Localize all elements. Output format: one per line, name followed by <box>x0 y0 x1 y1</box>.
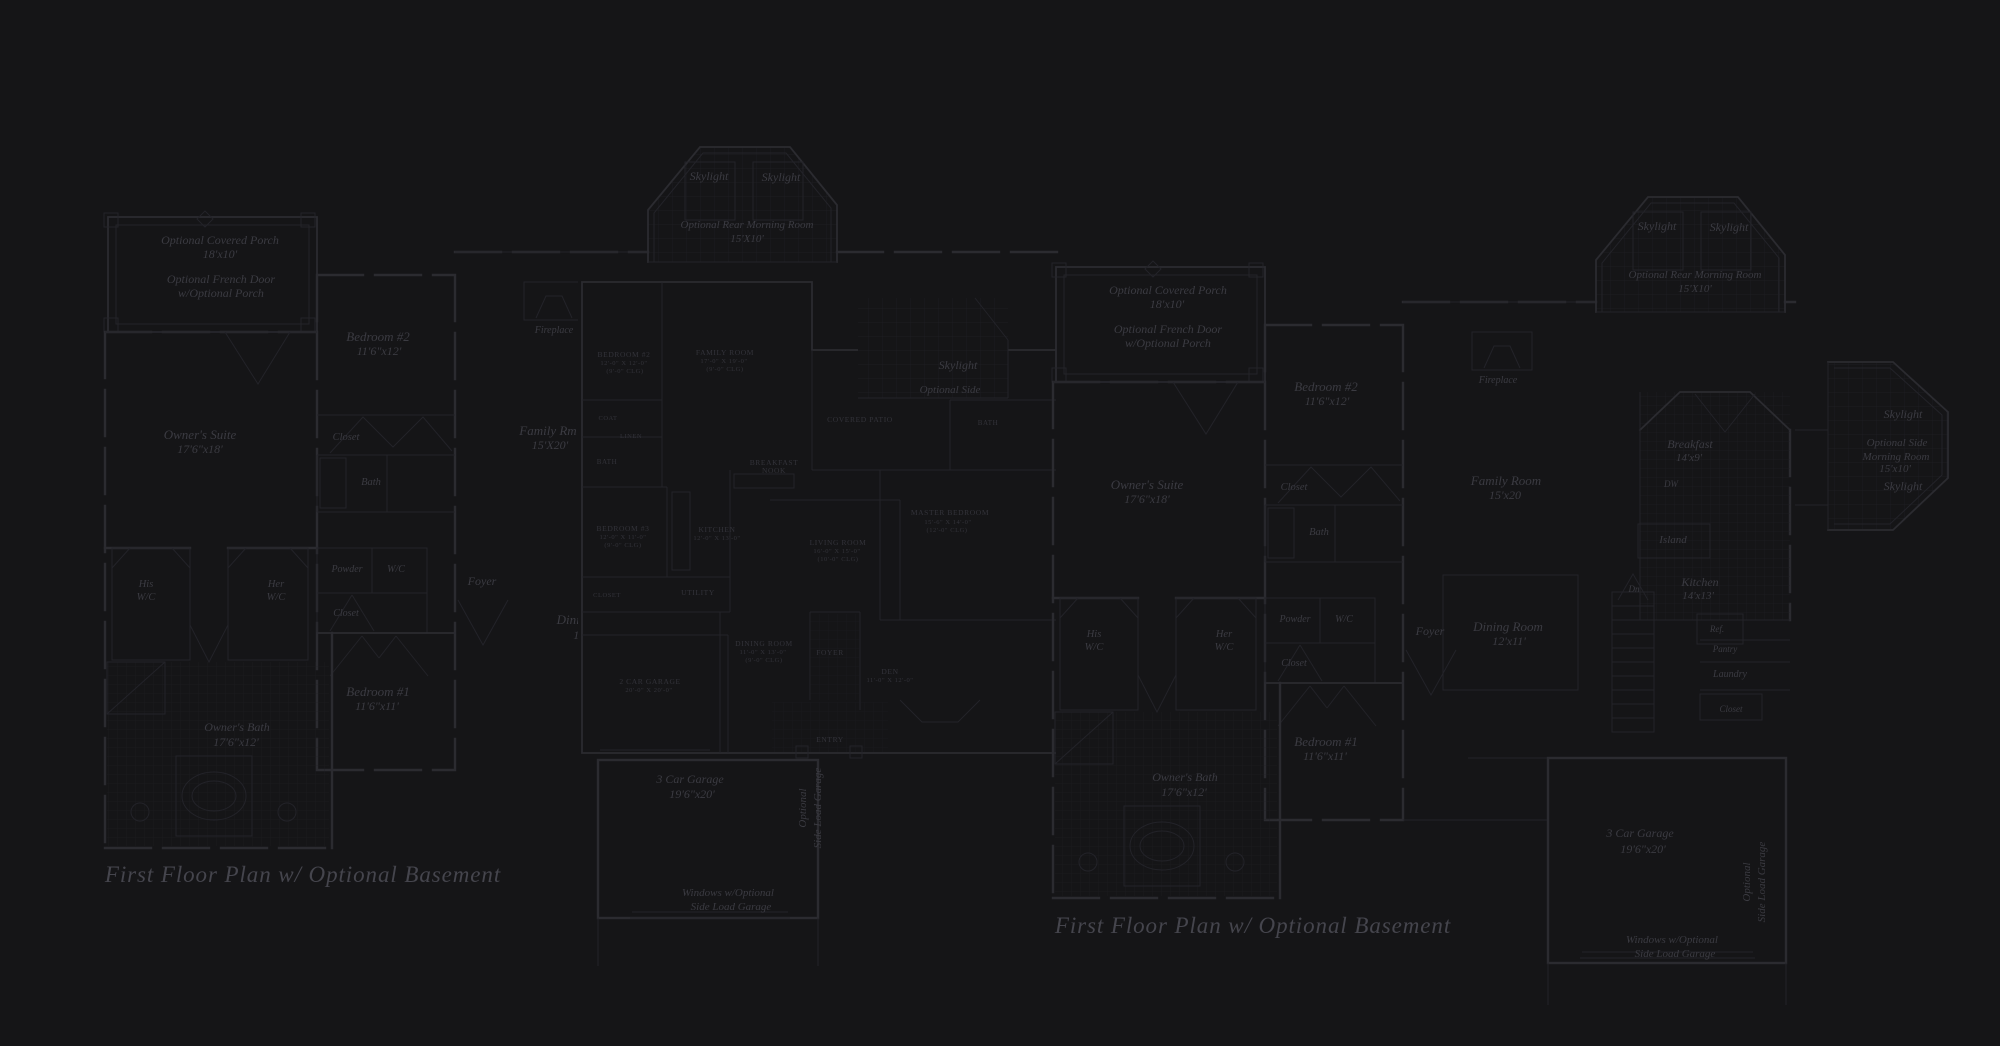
right-opt-french-door-2: w/Optional Porch <box>1125 336 1211 350</box>
mid-optional-side: Optional Side <box>920 384 981 396</box>
mid-master-bedroom-dim: 15'-6" X 14'-0" <box>924 519 971 526</box>
left-side-load-1: Optional <box>797 788 809 827</box>
mid-coat: COAT <box>598 415 617 422</box>
mid-garage-dim: 20'-0" X 20'-0" <box>625 687 672 694</box>
left-plan-title: First Floor Plan w/ Optional Basement <box>104 862 501 887</box>
left-bedroom2: Bedroom #2 <box>346 329 410 344</box>
left-closet-2: Closet <box>333 608 359 619</box>
side-morning-room-fragment: SkylightOptional SideMorning Room15'x10'… <box>1795 355 1960 537</box>
mid-family-room-clg: (9'-0" CLG) <box>706 366 743 373</box>
left-fireplace: Fireplace <box>534 325 574 336</box>
right-side-load-1: Optional <box>1741 862 1753 901</box>
right-owners-suite: Owner's Suite <box>1111 477 1184 492</box>
mid-bedroom3: BEDROOM #3 <box>597 524 650 533</box>
right-closet-2: Closet <box>1281 658 1307 669</box>
left-garage: 3 Car Garage <box>655 772 724 786</box>
right-bedroom1-dim: 11'6"x11' <box>1303 749 1347 763</box>
left-bedroom1: Bedroom #1 <box>346 684 409 699</box>
mid-breakfast-nook-2: NOOK <box>762 466 786 475</box>
left-wc: W/C <box>387 564 405 575</box>
left-her-wc: W/C <box>267 592 287 603</box>
left-closet: Closet <box>333 432 361 443</box>
right-bedroom2-dim: 11'6"x12' <box>1305 394 1350 408</box>
left-bath: Bath <box>361 477 381 488</box>
left-her: Her <box>267 579 285 590</box>
mid-bedroom3-clg: (9'-0" CLG) <box>604 542 641 549</box>
mid-master-bedroom-clg: (12'-0" CLG) <box>927 527 968 534</box>
right-opt-french-door: Optional French Door <box>1114 322 1223 336</box>
right-his-wc: W/C <box>1085 642 1105 653</box>
right-kitchen-dim: 14'x13' <box>1682 590 1714 602</box>
left-family-rm-dim: 15'X20' <box>532 438 569 452</box>
left-his-wc: W/C <box>137 592 157 603</box>
right-side-load-2: Side Load Garage <box>1756 842 1768 923</box>
right-owners-suite-dim: 17'6"x18' <box>1124 492 1170 506</box>
left-family-rm: Family Rm <box>518 423 576 438</box>
left-side-load-2: Side Load Garage <box>812 768 824 849</box>
right-rear-morning-room: Optional Rear Morning Room <box>1629 269 1762 281</box>
side-morning-room-dim: 15'x10' <box>1879 463 1911 475</box>
mid-living-room-clg: (10'-0" CLG) <box>818 556 859 563</box>
floor-plans-drawing: First Floor Plan w/ Optional Basement Op… <box>0 0 2000 1046</box>
left-rear-morning-room: Optional Rear Morning Room <box>681 219 814 231</box>
right-kitchen: Kitchen <box>1680 575 1718 589</box>
mid-kitchen-dim: 12'-0" X 13'-0" <box>693 535 740 542</box>
left-bedroom2-dim: 11'6"x12' <box>357 344 402 358</box>
left-windows-note-2: Side Load Garage <box>691 901 772 913</box>
mid-kitchen: KITCHEN <box>698 525 735 534</box>
left-rear-morning-room-dim: 15'X10' <box>730 233 764 245</box>
left-opt-covered-porch: Optional Covered Porch <box>161 233 279 247</box>
right-her-wc: W/C <box>1215 642 1235 653</box>
mid-bath: BATH <box>597 458 618 466</box>
right-closet: Closet <box>1281 482 1309 493</box>
side-morning-room-2: Morning Room <box>1862 451 1930 463</box>
floor-plan-canvas: First Floor Plan w/ Optional Basement Op… <box>0 0 2000 1046</box>
mid-dining-room-dim: 11'-0" X 13'-0" <box>740 649 787 656</box>
left-garage-dim: 19'6"x20' <box>669 787 715 801</box>
mid-dining-room: DINING ROOM <box>735 639 793 648</box>
left-owners-bath: Owner's Bath <box>204 720 270 734</box>
right-windows-note: Windows w/Optional <box>1626 934 1718 946</box>
mid-dining-room-clg: (9'-0" CLG) <box>745 657 782 664</box>
right-his: His <box>1086 629 1102 640</box>
right-breakfast: Breakfast <box>1667 437 1713 451</box>
mid-garage: 2 CAR GARAGE <box>619 677 680 686</box>
mid-entry: ENTRY <box>816 735 844 744</box>
left-his: His <box>138 579 154 590</box>
side-skylight-2: Skylight <box>1884 479 1923 493</box>
mid-skylight: Skylight <box>939 358 978 372</box>
left-opt-french-door-2: w/Optional Porch <box>178 286 264 300</box>
right-bedroom2: Bedroom #2 <box>1294 379 1358 394</box>
left-opt-french-door: Optional French Door <box>167 272 276 286</box>
mid-den-dim: 11'-0" X 12'-0" <box>867 677 914 684</box>
right-her: Her <box>1215 629 1233 640</box>
right-island: Island <box>1658 534 1687 546</box>
right-dn: Dn <box>1628 584 1640 594</box>
right-fireplace: Fireplace <box>1478 375 1518 386</box>
left-foyer: Foyer <box>467 574 497 588</box>
right-closet-3: Closet <box>1719 704 1743 714</box>
mid-bedroom2-dim: 12'-0" X 12'-0" <box>600 360 647 367</box>
side-morning-room: Optional Side <box>1867 437 1928 449</box>
right-skylight-1: Skylight <box>1638 219 1677 233</box>
right-plan-title: First Floor Plan w/ Optional Basement <box>1054 913 1451 938</box>
middle-skylight-fragment: SkylightOptional Side <box>858 298 1008 398</box>
mid-closet: CLOSET <box>593 592 621 599</box>
right-dw: DW <box>1663 479 1679 489</box>
left-owners-bath-dim: 17'6"x12' <box>213 735 259 749</box>
right-foyer: Foyer <box>1415 624 1445 638</box>
mid-foyer: FOYER <box>816 648 844 657</box>
mid-master-bedroom: MASTER BEDROOM <box>911 508 989 517</box>
left-windows-note: Windows w/Optional <box>682 887 774 899</box>
mid-bedroom2: BEDROOM #2 <box>598 350 651 359</box>
right-dining-room: Dining Room <box>1472 619 1543 634</box>
right-laundry: Laundry <box>1712 669 1747 680</box>
right-family-room-dim: 15'x20 <box>1489 488 1521 502</box>
right-breakfast-dim: 14'x9' <box>1676 452 1703 464</box>
left-powder: Powder <box>330 564 362 575</box>
left-owners-suite: Owner's Suite <box>164 427 237 442</box>
mid-linen: LINEN <box>620 433 642 440</box>
right-windows-note-2: Side Load Garage <box>1635 948 1716 960</box>
right-rear-morning-room-dim: 15'X10' <box>1678 283 1712 295</box>
left-opt-covered-porch-dim: 18'x10' <box>203 247 238 261</box>
mid-utility: UTILITY <box>681 588 715 597</box>
mid-living-room: LIVING ROOM <box>810 538 867 547</box>
right-owners-bath-dim: 17'6"x12' <box>1161 785 1207 799</box>
right-floor-plan: First Floor Plan w/ Optional Basement Op… <box>1052 185 1796 1005</box>
mid-living-room-dim: 16'-0" X 15'-0" <box>813 548 860 555</box>
right-garage-dim: 19'6"x20' <box>1620 842 1666 856</box>
mid-bedroom2-clg: (9'-0" CLG) <box>606 368 643 375</box>
mid-bath2: BATH <box>978 419 999 427</box>
right-pantry: Pantry <box>1712 644 1738 654</box>
right-garage: 3 Car Garage <box>1605 826 1674 840</box>
right-dining-room-dim: 12'x11' <box>1492 634 1526 648</box>
mid-family-room: FAMILY ROOM <box>696 348 754 357</box>
side-skylight-1: Skylight <box>1884 407 1923 421</box>
right-powder: Powder <box>1278 614 1310 625</box>
right-wc: W/C <box>1335 614 1353 625</box>
mid-covered-patio: COVERED PATIO <box>827 415 893 424</box>
left-skylight-2: Skylight <box>762 170 801 184</box>
right-opt-covered-porch: Optional Covered Porch <box>1109 283 1227 297</box>
mid-den: DEN <box>881 667 898 676</box>
left-owners-suite-dim: 17'6"x18' <box>177 442 223 456</box>
mid-family-room-dim: 17'-0" X 19'-0" <box>700 358 747 365</box>
right-family-room: Family Room <box>1470 473 1541 488</box>
left-bedroom1-dim: 11'6"x11' <box>355 699 399 713</box>
right-bath: Bath <box>1309 527 1329 538</box>
right-opt-covered-porch-dim: 18'x10' <box>1150 297 1185 311</box>
right-skylight-2: Skylight <box>1710 220 1749 234</box>
left-skylight-1: Skylight <box>690 169 729 183</box>
mid-bedroom3-dim: 12'-0" X 11'-0" <box>600 534 647 541</box>
right-ref: Ref. <box>1709 624 1724 634</box>
right-owners-bath: Owner's Bath <box>1152 770 1218 784</box>
right-bedroom1: Bedroom #1 <box>1294 734 1357 749</box>
